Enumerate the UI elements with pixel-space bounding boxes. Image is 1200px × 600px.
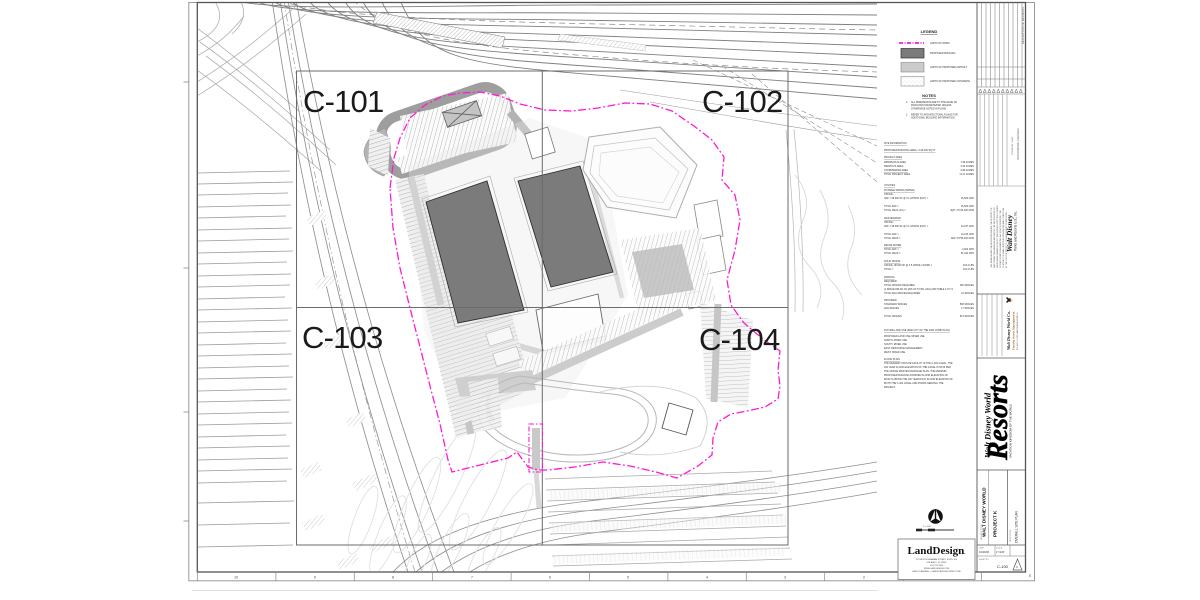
svg-text:2: 2 (863, 576, 865, 580)
svg-text:ORLANDO, FL 32801: ORLANDO, FL 32801 (926, 561, 947, 564)
svg-text:PROPOSED LAND USE: MIXED USE: PROPOSED LAND USE: MIXED USE (884, 335, 925, 338)
svg-text:103.4 LBS: 103.4 LBS (963, 264, 975, 267)
svg-text:1" = 100': 1" = 100' (923, 526, 932, 528)
svg-text:10: 10 (234, 576, 238, 580)
svg-text:68.00 IS ABOVE THE 100 YEAR/3: 68.00 IS ABOVE THE 100 YEAR/3 DAY FLOOD … (884, 378, 953, 381)
svg-text:407.270.7800: 407.270.7800 (930, 565, 944, 567)
svg-text:LIMITS OF PROPOSED ASPHALT: LIMITS OF PROPOSED ASPHALT (930, 66, 968, 69)
svg-text:17 SPACES: 17 SPACES (961, 307, 974, 310)
svg-text:PROPOSED BUILDING: PROPOSED BUILDING (930, 52, 956, 55)
svg-text:LAND PLANNING + LANDSCAPE ARCH: LAND PLANNING + LANDSCAPE ARCHITECTURE (912, 570, 961, 573)
svg-text:2.52 ACRES: 2.52 ACRES (961, 165, 975, 168)
svg-text:C-104: C-104 (699, 322, 780, 357)
svg-text:TOTAL SPACES: TOTAL SPACES (884, 315, 902, 318)
svg-text:613 SPACES: 613 SPACES (960, 315, 975, 318)
svg-text:EAST: RESOURCE MANAGEMENT: EAST: RESOURCE MANAGEMENT (884, 347, 923, 350)
svg-text:P.O. BOX 10,000 LAKE BUENA VIS: P.O. BOX 10,000 LAKE BUENA VISTA, FL (1016, 311, 1019, 350)
svg-text:SIGNATURE / DATE: SIGNATURE / DATE (1011, 136, 1014, 155)
svg-text:WWW.LANDDESIGN.COM: WWW.LANDDESIGN.COM (924, 567, 950, 570)
svg-text:ADF 3.5*56,400 GPM: ADF 3.5*56,400 GPM (951, 237, 974, 240)
svg-text:TOTAL ADF =: TOTAL ADF = (884, 248, 899, 251)
svg-text:WALT DISNEY IMAGINEERING AND M: WALT DISNEY IMAGINEERING AND MAY NOT BE … (993, 207, 996, 268)
svg-text:SCALE: SCALE (996, 547, 1003, 550)
svg-text:16,500 GPD: 16,500 GPD (961, 205, 974, 208)
svg-text:100 YEAR FLOOD ELEVATION OF TH: 100 YEAR FLOOD ELEVATION OF THE CANAL IS… (884, 366, 951, 369)
svg-text:6: 6 (549, 576, 551, 580)
svg-text:PROVIDED:: PROVIDED: (884, 299, 897, 302)
svg-text:SITE INFORMATION: SITE INFORMATION (884, 142, 907, 145)
svg-text:PROFESSIONAL ENGINEER: PROFESSIONAL ENGINEER (1017, 128, 1020, 160)
svg-text:10/20/06: 10/20/06 (979, 550, 990, 554)
svg-text:THE NEAREST OFFSITE FACILITY I: THE NEAREST OFFSITE FACILITY IS THE C-40… (884, 362, 953, 365)
svg-text:SHEET NO.: SHEET NO. (979, 559, 990, 561)
svg-text:C-100: C-100 (997, 564, 1009, 569)
svg-text:5: 5 (627, 576, 629, 580)
svg-text:0.86 ACRES: 0.86 ACRES (961, 169, 975, 172)
svg-text:10 SPACES: 10 SPACES (961, 292, 974, 295)
svg-text:ADF = 98,000 SF @ 0.1 GPD/SF (: ADF = 98,000 SF @ 0.1 GPD/SF (DAY) = (884, 197, 929, 200)
svg-text:OTHERWISE NOTED IN PLANS.: OTHERWISE NOTED IN PLANS. (911, 107, 947, 110)
svg-text:THE OFFICE WASTES DRAINAGE PLA: THE OFFICE WASTES DRAINAGE PLAN. THE MIN… (884, 370, 946, 373)
svg-text:C-103: C-103 (302, 320, 382, 355)
svg-text:TOTAL ADF =: TOTAL ADF = (884, 205, 899, 208)
svg-text:LIMITS OF PROPOSED CONCRETE: LIMITS OF PROPOSED CONCRETE (930, 80, 970, 83)
svg-text:8: 8 (392, 576, 394, 580)
svg-text:WALT DISNEY WORLD: WALT DISNEY WORLD (982, 487, 987, 537)
svg-text:9: 9 (314, 576, 316, 580)
svg-text:NOTES: NOTES (922, 93, 936, 98)
svg-text:TOTAL ADA SPACES REQUIRED: TOTAL ADA SPACES REQUIRED (884, 292, 920, 295)
svg-text:4QP: 2.5*23,200 GPM: 4QP: 2.5*23,200 GPM (950, 209, 974, 212)
svg-text:PROPOSED BUILDING FINISHED FLO: PROPOSED BUILDING FINISHED FLOOR ELEVATI… (884, 374, 948, 377)
svg-text:SHEET TITLE: SHEET TITLE (1010, 529, 1012, 542)
svg-text:13,237 GPD: 13,237 GPD (961, 225, 974, 228)
svg-text:REUSE WATER: REUSE WATER (884, 244, 902, 247)
svg-text:PARKING: PARKING (884, 276, 895, 279)
svg-text:460 SPACES: 460 SPACES (960, 284, 975, 287)
svg-text:51,942 GPD: 51,942 GPD (961, 252, 974, 255)
svg-text:K: K (1016, 565, 1018, 569)
svg-text:TOTAL PEAK =: TOTAL PEAK = (884, 252, 901, 255)
svg-text:VACATION KINGDOM OF THE WORLD: VACATION KINGDOM OF THE WORLD (1009, 403, 1013, 458)
svg-text:DESCRIPTION OF REVISIONS: DESCRIPTION OF REVISIONS (1021, 7, 1025, 44)
svg-text:FUTURE LAND USE (PER CITY OF T: FUTURE LAND USE (PER CITY OF THE 2020 CO… (884, 329, 950, 332)
svg-text:POTABLE WATER (WATER): POTABLE WATER (WATER) (884, 189, 915, 192)
svg-text:2.: 2. (906, 114, 908, 117)
svg-text:TOTAL PEAK (4X) =: TOTAL PEAK (4X) = (884, 209, 906, 212)
svg-text:STANDARD SPACES: STANDARD SPACES (884, 303, 908, 306)
svg-text:LIMITS OF WORK: LIMITS OF WORK (930, 42, 950, 45)
svg-text:NORTH: MIXED USE: NORTH: MIXED USE (884, 339, 907, 342)
svg-text:PROJECT K: PROJECT K (993, 510, 998, 537)
svg-text:THIS DRAWING AND THE DESIGN SH: THIS DRAWING AND THE DESIGN SHOWN ARE TH… (990, 206, 993, 268)
svg-text:OVERALL SITE PLAN: OVERALL SITE PLAN (1015, 511, 1019, 543)
svg-text:11.27 ACRES: 11.27 ACRES (959, 173, 974, 176)
svg-text:7: 7 (471, 576, 473, 580)
svg-text:STORMWATER AREA: STORMWATER AREA (884, 169, 908, 172)
svg-text:596 SPACES: 596 SPACES (960, 303, 975, 306)
svg-text:PROJECT AREA: PROJECT AREA (884, 156, 903, 159)
svg-text:(1 SPACE/196 SF OF 25% OF TOTA: (1 SPACE/196 SF OF 25% OF TOTAL GFA) AND… (884, 288, 954, 291)
svg-text:16,500 GPD: 16,500 GPD (961, 197, 974, 200)
svg-text:1"=100': 1"=100' (996, 550, 1005, 554)
svg-text:PERVIOUS AREA: PERVIOUS AREA (884, 165, 904, 168)
svg-text:Facility Asset Management: Facility Asset Management (1012, 312, 1016, 350)
svg-text:3: 3 (784, 576, 786, 580)
svg-text:REQUIRED:: REQUIRED: (884, 280, 898, 283)
svg-text:IMPERVIOUS AREA: IMPERVIOUS AREA (884, 161, 906, 164)
svg-text:7.89 ACRES: 7.89 ACRES (961, 161, 975, 164)
svg-text:SOLID WASTE: SOLID WASTE (884, 260, 901, 263)
svg-text:USED IN ANY MANNER WITHOUT THE: USED IN ANY MANNER WITHOUT THE EXPRESS W… (996, 205, 999, 268)
svg-text:DATE: DATE (979, 547, 985, 550)
svg-text:1.: 1. (906, 101, 908, 104)
svg-text:TOTAL ADF =: TOTAL ADF = (884, 233, 899, 236)
svg-text:4,900 GPD: 4,900 GPD (962, 248, 974, 251)
svg-text:TOTAL PROJECT AREA: TOTAL PROJECT AREA (884, 173, 911, 176)
svg-text:103.4 LBS: 103.4 LBS (963, 268, 975, 271)
svg-text:FLOOD PLAIN: FLOOD PLAIN (884, 358, 900, 361)
svg-text:WEST: MIXED USE: WEST: MIXED USE (884, 351, 906, 354)
svg-text:OFFICE:: OFFICE: (884, 193, 894, 196)
svg-text:PROJECT.: PROJECT. (884, 386, 896, 389)
svg-text:SOUTH: MIXED USE: SOUTH: MIXED USE (884, 343, 907, 346)
svg-text:C-101: C-101 (303, 84, 383, 119)
svg-text:223 NORTH GRAHAM STREET, SUITE: 223 NORTH GRAHAM STREET, SUITE 100 (916, 558, 958, 561)
svg-text:Walt Disney World Co.: Walt Disney World Co. (1006, 311, 1011, 350)
svg-text:OFFICE: 98,000 SF @ 4.5 LB/WIL: OFFICE: 98,000 SF @ 4.5 LB/WILL WORK = (884, 264, 933, 267)
svg-text:TOTAL SPACES REQUIRED: TOTAL SPACES REQUIRED (884, 284, 915, 287)
svg-text:Parks and Resorts U.S., Inc.: Parks and Resorts U.S., Inc. (1014, 211, 1018, 251)
svg-text:C-102: C-102 (702, 84, 782, 119)
svg-text:OFFICE:: OFFICE: (884, 221, 894, 224)
svg-text:13,243 GPD: 13,243 GPD (961, 233, 974, 236)
svg-text:TOTAL PEAK =: TOTAL PEAK = (884, 237, 901, 240)
svg-text:4: 4 (706, 576, 708, 580)
svg-text:LEGEND: LEGEND (921, 29, 938, 34)
svg-text:WASTEWATER: WASTEWATER (884, 217, 901, 220)
svg-text:OF WALT DISNEY IMAGINEERING. A: OF WALT DISNEY IMAGINEERING. ALL RIGHTS … (999, 209, 1002, 268)
svg-text:UTILITIES: UTILITIES (884, 184, 896, 187)
svg-text:ADDITIONAL BUILDING INFORMATIO: ADDITIONAL BUILDING INFORMATION. (911, 117, 955, 120)
svg-text:PROPOSED BUILDING AREA = 146,0: PROPOSED BUILDING AREA = 146,000 SQ FT (884, 149, 936, 152)
svg-text:BOTH THE C-404 CANAL AND PONDS: BOTH THE C-404 CANAL AND PONDS SERVING T… (884, 382, 944, 385)
svg-text:TOTAL =: TOTAL = (884, 268, 894, 271)
svg-text:ADF = 98,000 SF @ 0.1 GPD/SF (: ADF = 98,000 SF @ 0.1 GPD/SF (DAY) = (884, 225, 929, 228)
svg-text:ADA SPACES: ADA SPACES (884, 307, 899, 310)
svg-text:LandDesign.: LandDesign. (907, 545, 966, 557)
